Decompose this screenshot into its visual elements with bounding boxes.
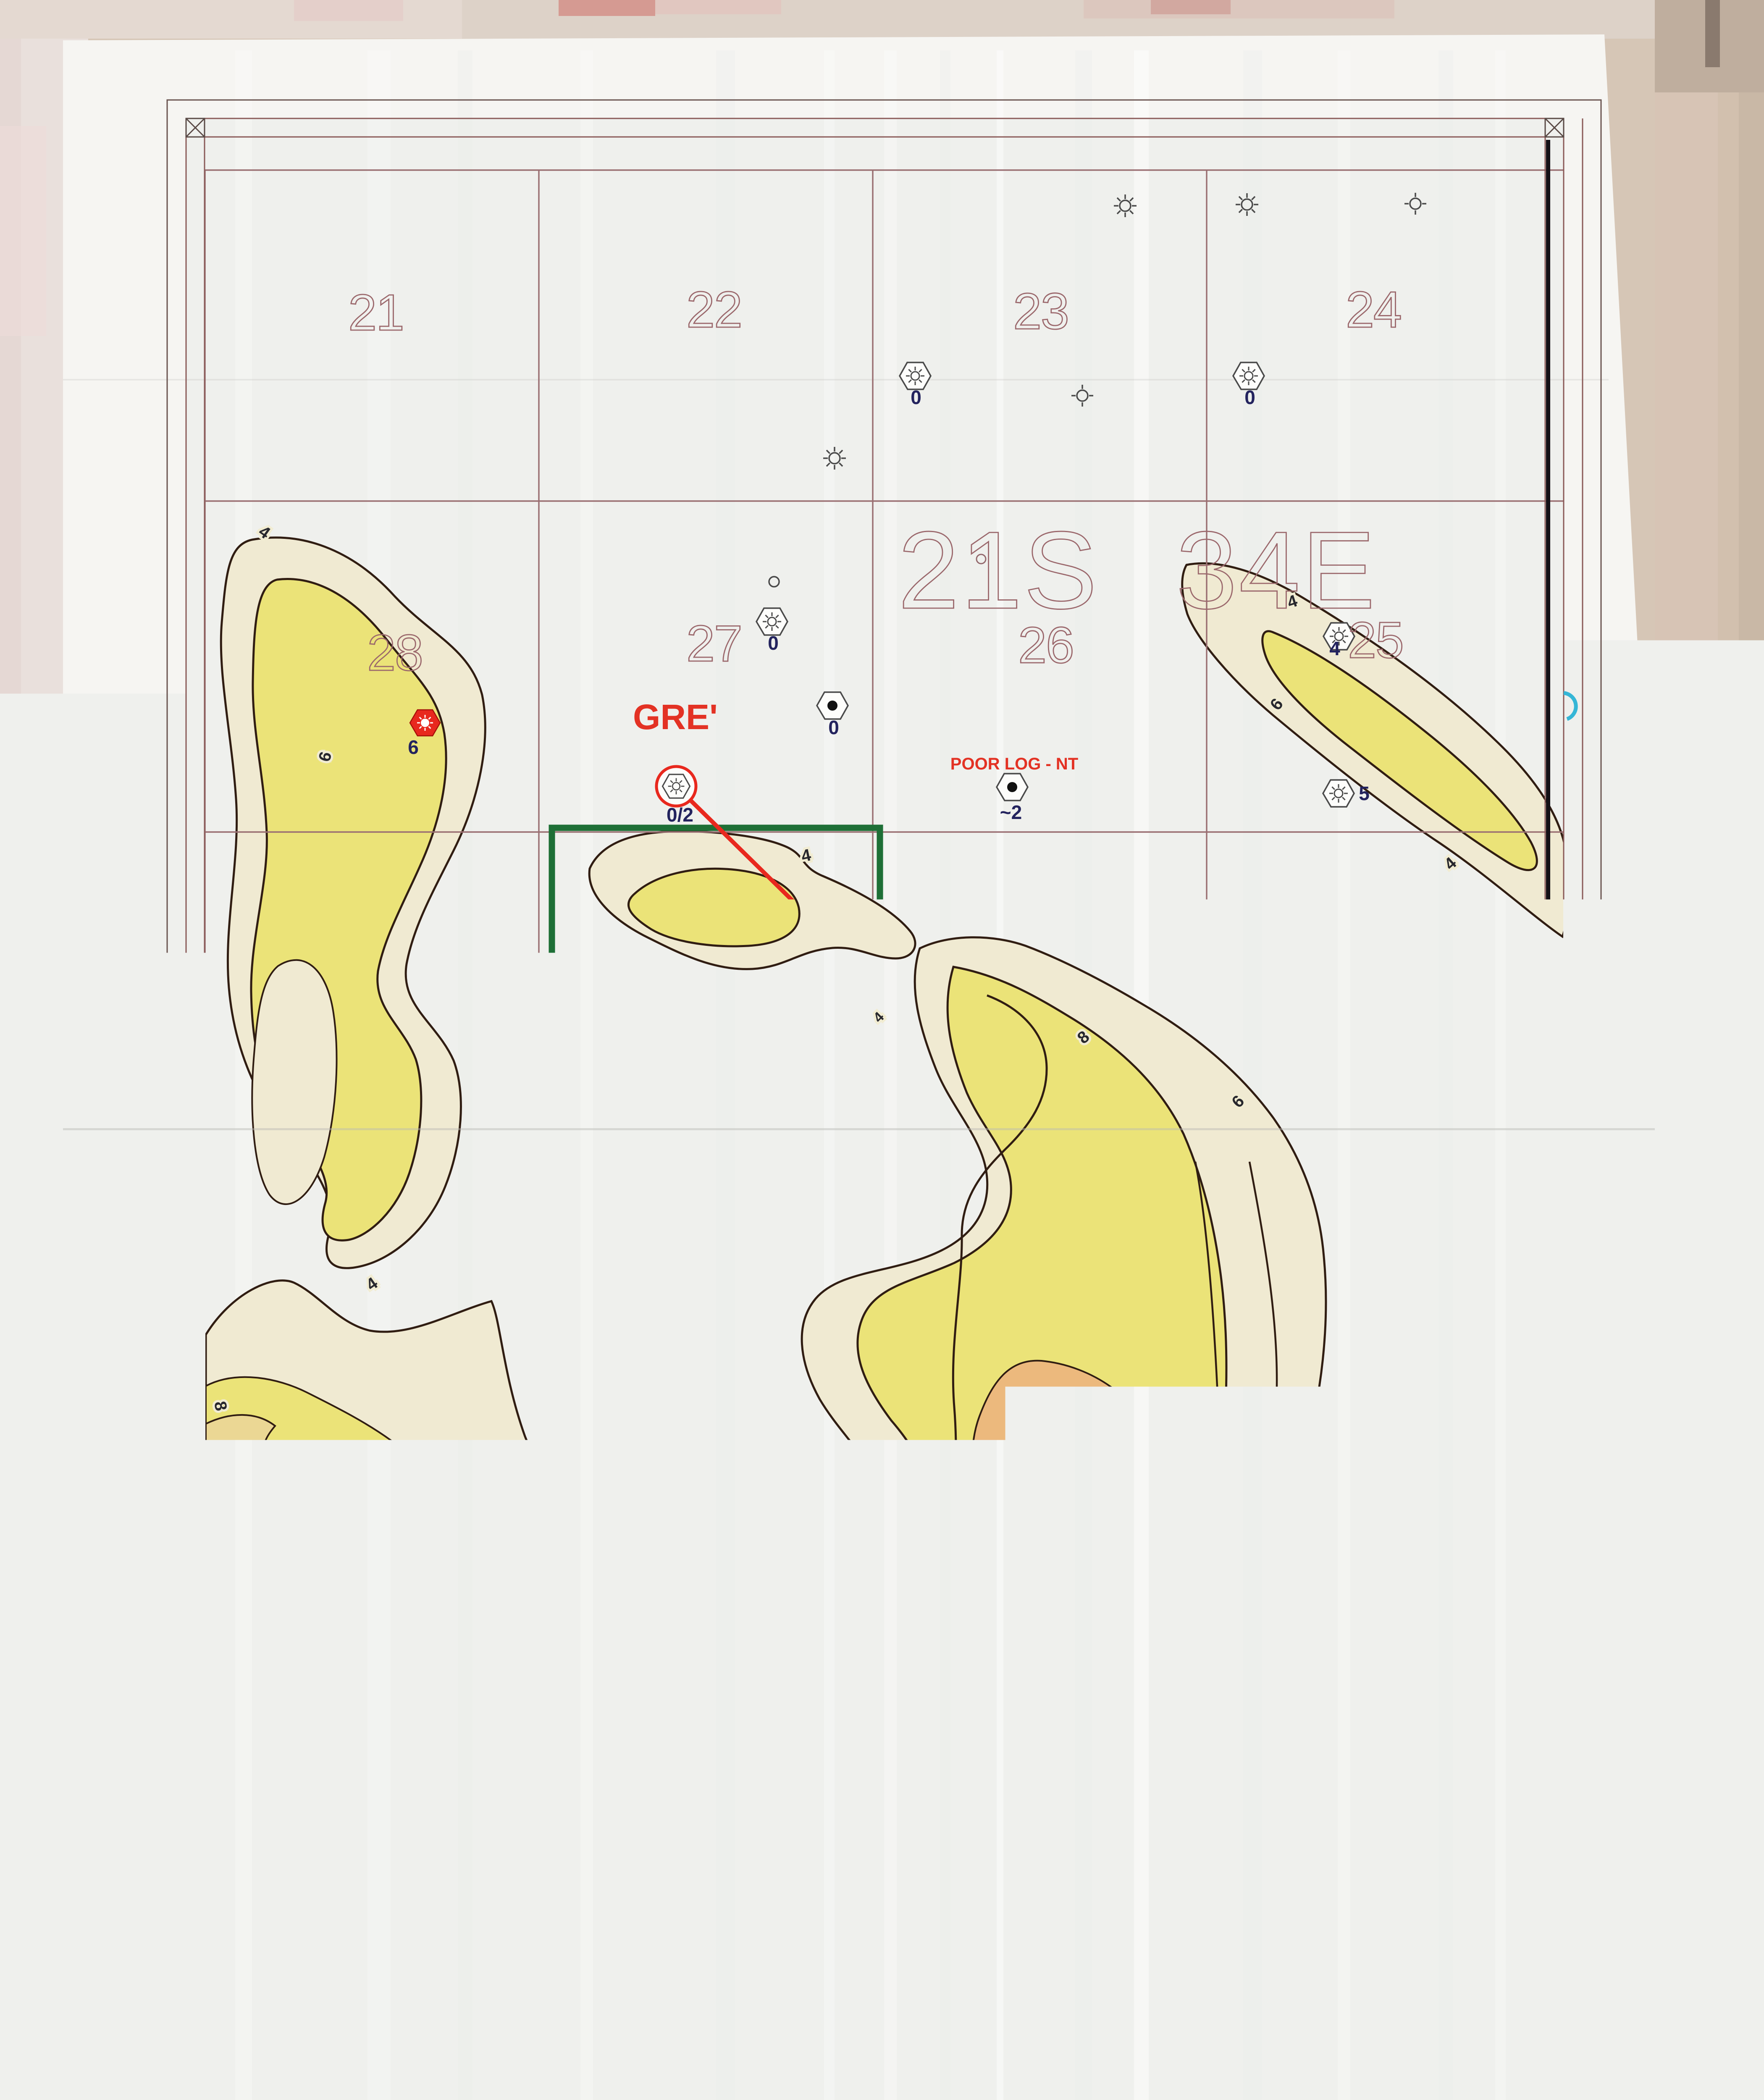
svg-text:22S: 22S bbox=[849, 1517, 1050, 1641]
svg-text:12: 12 bbox=[1360, 1620, 1416, 1677]
svg-text:6: 6 bbox=[408, 736, 419, 758]
svg-text:4: 4 bbox=[340, 1334, 351, 1356]
svg-text:4: 4 bbox=[1312, 1282, 1323, 1304]
svg-text:NET SAND ISOPACH MAP: NET SAND ISOPACH MAP bbox=[1152, 2078, 1485, 2100]
svg-text:7: 7 bbox=[987, 1044, 998, 1066]
svg-text:28: 28 bbox=[367, 624, 423, 681]
svg-text:8: 8 bbox=[1171, 1306, 1181, 1328]
svg-text:9: 9 bbox=[377, 1617, 404, 1675]
svg-text:5: 5 bbox=[537, 1069, 548, 1091]
svg-text:10: 10 bbox=[1014, 1769, 1035, 1790]
svg-text:LEGEND: LEGEND bbox=[534, 1977, 674, 2015]
svg-text:GRE': GRE' bbox=[633, 697, 718, 737]
svg-text:4: 4 bbox=[1329, 638, 1340, 659]
svg-text:3: 3 bbox=[709, 1290, 736, 1347]
svg-text:34: 34 bbox=[691, 948, 747, 1005]
svg-text:Nearburg Producing Company: Nearburg Producing Company bbox=[1080, 1921, 1361, 1943]
svg-text:N: N bbox=[252, 1908, 269, 1935]
svg-text:3: 3 bbox=[1318, 1643, 1328, 1665]
svg-text:LOWER MORROW "A" PRODUCER: LOWER MORROW "A" PRODUCER bbox=[440, 2033, 805, 2057]
svg-text:35: 35 bbox=[1024, 949, 1080, 1006]
svg-text:9: 9 bbox=[982, 1704, 992, 1726]
svg-text:0: 0 bbox=[1419, 1053, 1430, 1074]
svg-text:GRAMA RIDGE EAST “34” ST. #1: GRAMA RIDGE EAST “34” ST. #1 bbox=[1109, 2011, 1529, 2041]
svg-text:34E: 34E bbox=[1176, 509, 1377, 632]
svg-text:GRE: GRE bbox=[622, 1002, 700, 1042]
svg-text:4: 4 bbox=[1164, 990, 1175, 1011]
svg-text:12: 12 bbox=[236, 1799, 257, 1821]
svg-text:GRE2': GRE2' bbox=[1331, 894, 1438, 934]
svg-text:33: 33 bbox=[357, 956, 412, 1013]
svg-text:4: 4 bbox=[683, 1600, 694, 1622]
svg-text:0: 0 bbox=[768, 632, 779, 654]
svg-text:2: 2 bbox=[1501, 1301, 1512, 1323]
svg-text:10: 10 bbox=[690, 1620, 746, 1677]
svg-text:4: 4 bbox=[817, 1568, 828, 1590]
svg-text:2: 2 bbox=[815, 1281, 826, 1303]
svg-text:Midland, Texas: Midland, Texas bbox=[1080, 1961, 1198, 1980]
svg-text:36: 36 bbox=[1356, 947, 1412, 1004]
svg-text:27: 27 bbox=[686, 615, 742, 672]
svg-text:0/2: 0/2 bbox=[667, 804, 693, 826]
svg-text:23: 23 bbox=[1013, 283, 1068, 340]
svg-text:0: 0 bbox=[589, 1306, 600, 1328]
svg-text:2: 2 bbox=[1034, 1279, 1062, 1336]
svg-text:0: 0 bbox=[828, 717, 839, 738]
svg-text:0/0: 0/0 bbox=[843, 1086, 869, 1108]
svg-text:14: 14 bbox=[421, 1558, 443, 1580]
svg-text:0: 0 bbox=[1244, 386, 1255, 408]
svg-text:0/0: 0/0 bbox=[591, 1064, 617, 1086]
svg-text:24: 24 bbox=[1346, 281, 1401, 338]
svg-text:21S: 21S bbox=[898, 509, 1099, 632]
svg-text:UPHOLE PAY: UPHOLE PAY bbox=[376, 1513, 488, 1533]
svg-text:PAY W/UPP "B": PAY W/UPP "B" bbox=[289, 1843, 425, 1864]
svg-text:4/4: 4/4 bbox=[947, 920, 974, 942]
svg-text:~2: ~2 bbox=[1000, 801, 1022, 823]
svg-text:LEA COUNTY, NEW MEXICO: LEA COUNTY, NEW MEXICO bbox=[1189, 2040, 1449, 2061]
svg-text:0: 0 bbox=[1310, 987, 1320, 1009]
svg-text:21: 21 bbox=[348, 284, 404, 341]
svg-text:POOR LOG - NT: POOR LOG - NT bbox=[950, 755, 1078, 773]
svg-text:5: 5 bbox=[1359, 782, 1370, 804]
svg-text:0: 0 bbox=[911, 386, 921, 408]
svg-text:4: 4 bbox=[375, 1286, 402, 1343]
svg-text:LOWER MORROW "A" SHOW: LOWER MORROW "A" SHOW bbox=[440, 2062, 748, 2087]
svg-text:22: 22 bbox=[686, 281, 742, 338]
svg-text:GRE2: GRE2 bbox=[402, 1027, 500, 1067]
svg-text:4/5: 4/5 bbox=[814, 948, 841, 970]
svg-text:1: 1 bbox=[1369, 1279, 1397, 1336]
svg-text:34E: 34E bbox=[1136, 1521, 1336, 1644]
